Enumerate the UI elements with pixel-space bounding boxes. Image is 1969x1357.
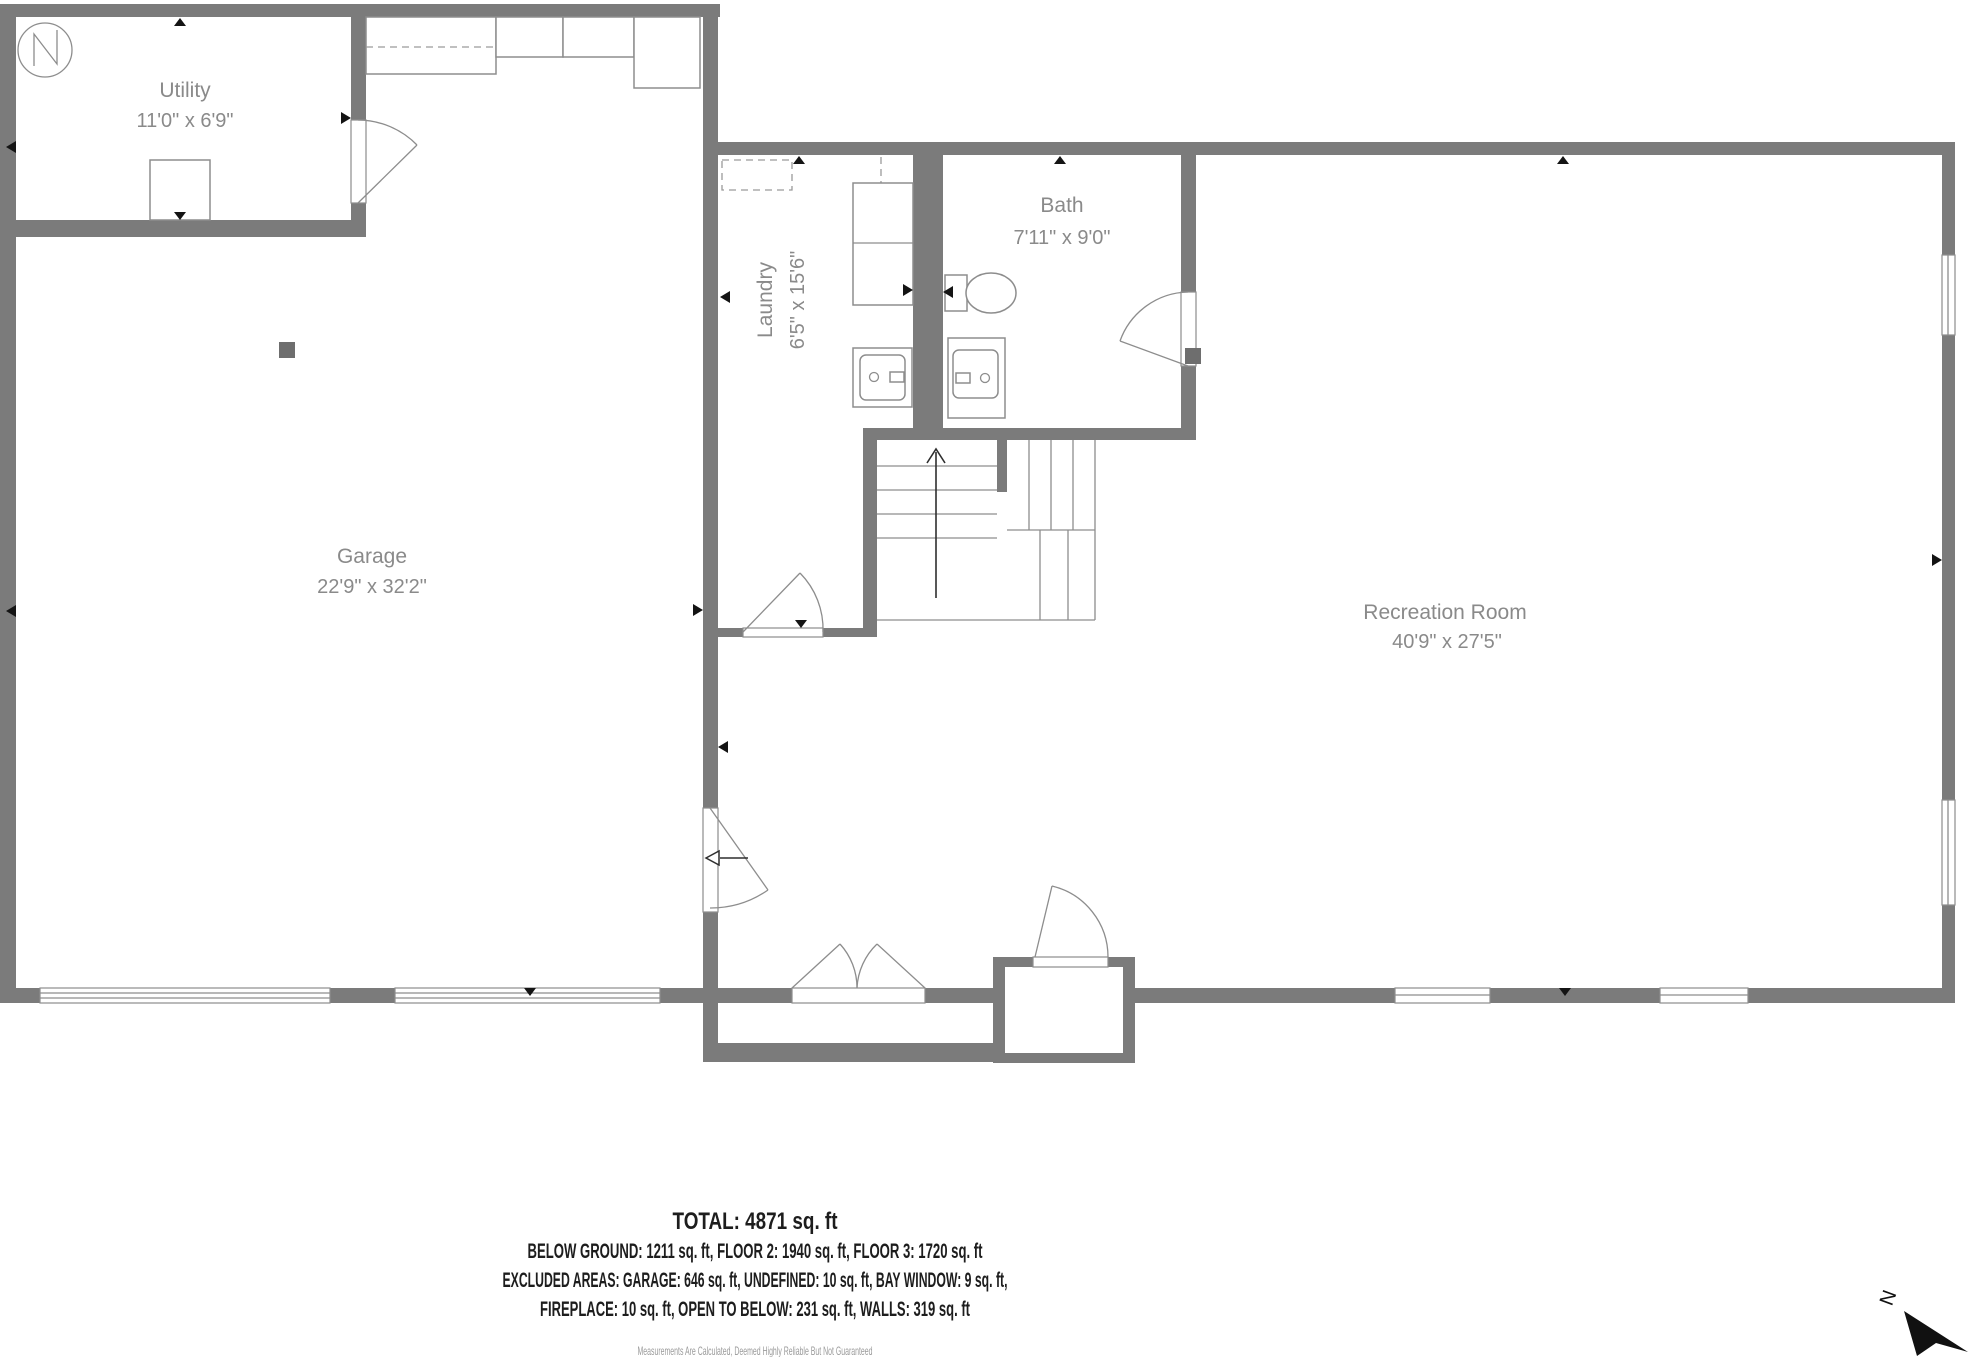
rec-window-bottom-right [1660, 988, 1748, 1003]
laundry-room-dims: 6'5" x 15'6" [787, 251, 809, 350]
entry-double-door [792, 944, 925, 1003]
compass-icon [18, 23, 72, 77]
bath-door [1120, 292, 1196, 366]
rec-window-right-upper [1942, 255, 1955, 335]
utility-room-label: Utility [159, 79, 211, 102]
laundry-cabinets [722, 157, 913, 305]
garage-room-dims: 22'9" x 32'2" [317, 576, 427, 598]
stairs-up-arrow-icon [927, 449, 945, 598]
bath-room-label: Bath [1040, 194, 1083, 217]
garage-post [279, 342, 295, 358]
water-heater [150, 160, 210, 220]
walls [0, 4, 1955, 1063]
summary-floors: BELOW GROUND: 1211 sq. ft, FLOOR 2: 1940… [528, 1240, 983, 1263]
recreation-room-dims: 40'9" x 27'5" [1392, 631, 1502, 653]
recreation-room-label: Recreation Room [1363, 601, 1526, 624]
floor-plan-page: Utility 11'0" x 6'9" Garage 22'9" x 32'2… [0, 0, 1969, 1357]
utility-door [351, 120, 417, 203]
measure-markers [6, 18, 1942, 996]
garage-room-label: Garage [337, 545, 407, 568]
front-door [1033, 886, 1108, 967]
garage-window-left [40, 988, 330, 1003]
rec-window-bottom-left [1395, 988, 1490, 1003]
summary-excluded-2: FIREPLACE: 10 sq. ft, OPEN TO BELOW: 231… [540, 1298, 970, 1321]
summary-disclaimer: Measurements Are Calculated, Deemed High… [638, 1344, 873, 1357]
fixtures [18, 17, 1201, 418]
floor-plan-drawing: Utility 11'0" x 6'9" Garage 22'9" x 32'2… [0, 0, 1969, 1357]
garage-cabinets [366, 17, 700, 88]
rec-window-right-lower [1942, 800, 1955, 905]
north-label: N [1876, 1287, 1902, 1308]
bath-sink-icon [948, 338, 1005, 418]
summary-excluded: EXCLUDED AREAS: GARAGE: 646 sq. ft, UNDE… [503, 1269, 1008, 1292]
laundry-sink-icon [853, 348, 912, 407]
utility-room-dims: 11'0" x 6'9" [136, 110, 233, 132]
toilet-icon [945, 273, 1016, 313]
bath-room-dims: 7'11" x 9'0" [1013, 227, 1110, 249]
summary-total: TOTAL: 4871 sq. ft [673, 1208, 838, 1235]
rec-post [1185, 348, 1201, 364]
north-arrow-icon: N [1876, 1287, 1968, 1356]
doors [351, 120, 1196, 1003]
stairs [877, 440, 1095, 620]
laundry-door [743, 573, 823, 637]
area-summary: TOTAL: 4871 sq. ft BELOW GROUND: 1211 sq… [503, 1208, 1008, 1357]
laundry-room-label: Laundry [754, 262, 777, 338]
